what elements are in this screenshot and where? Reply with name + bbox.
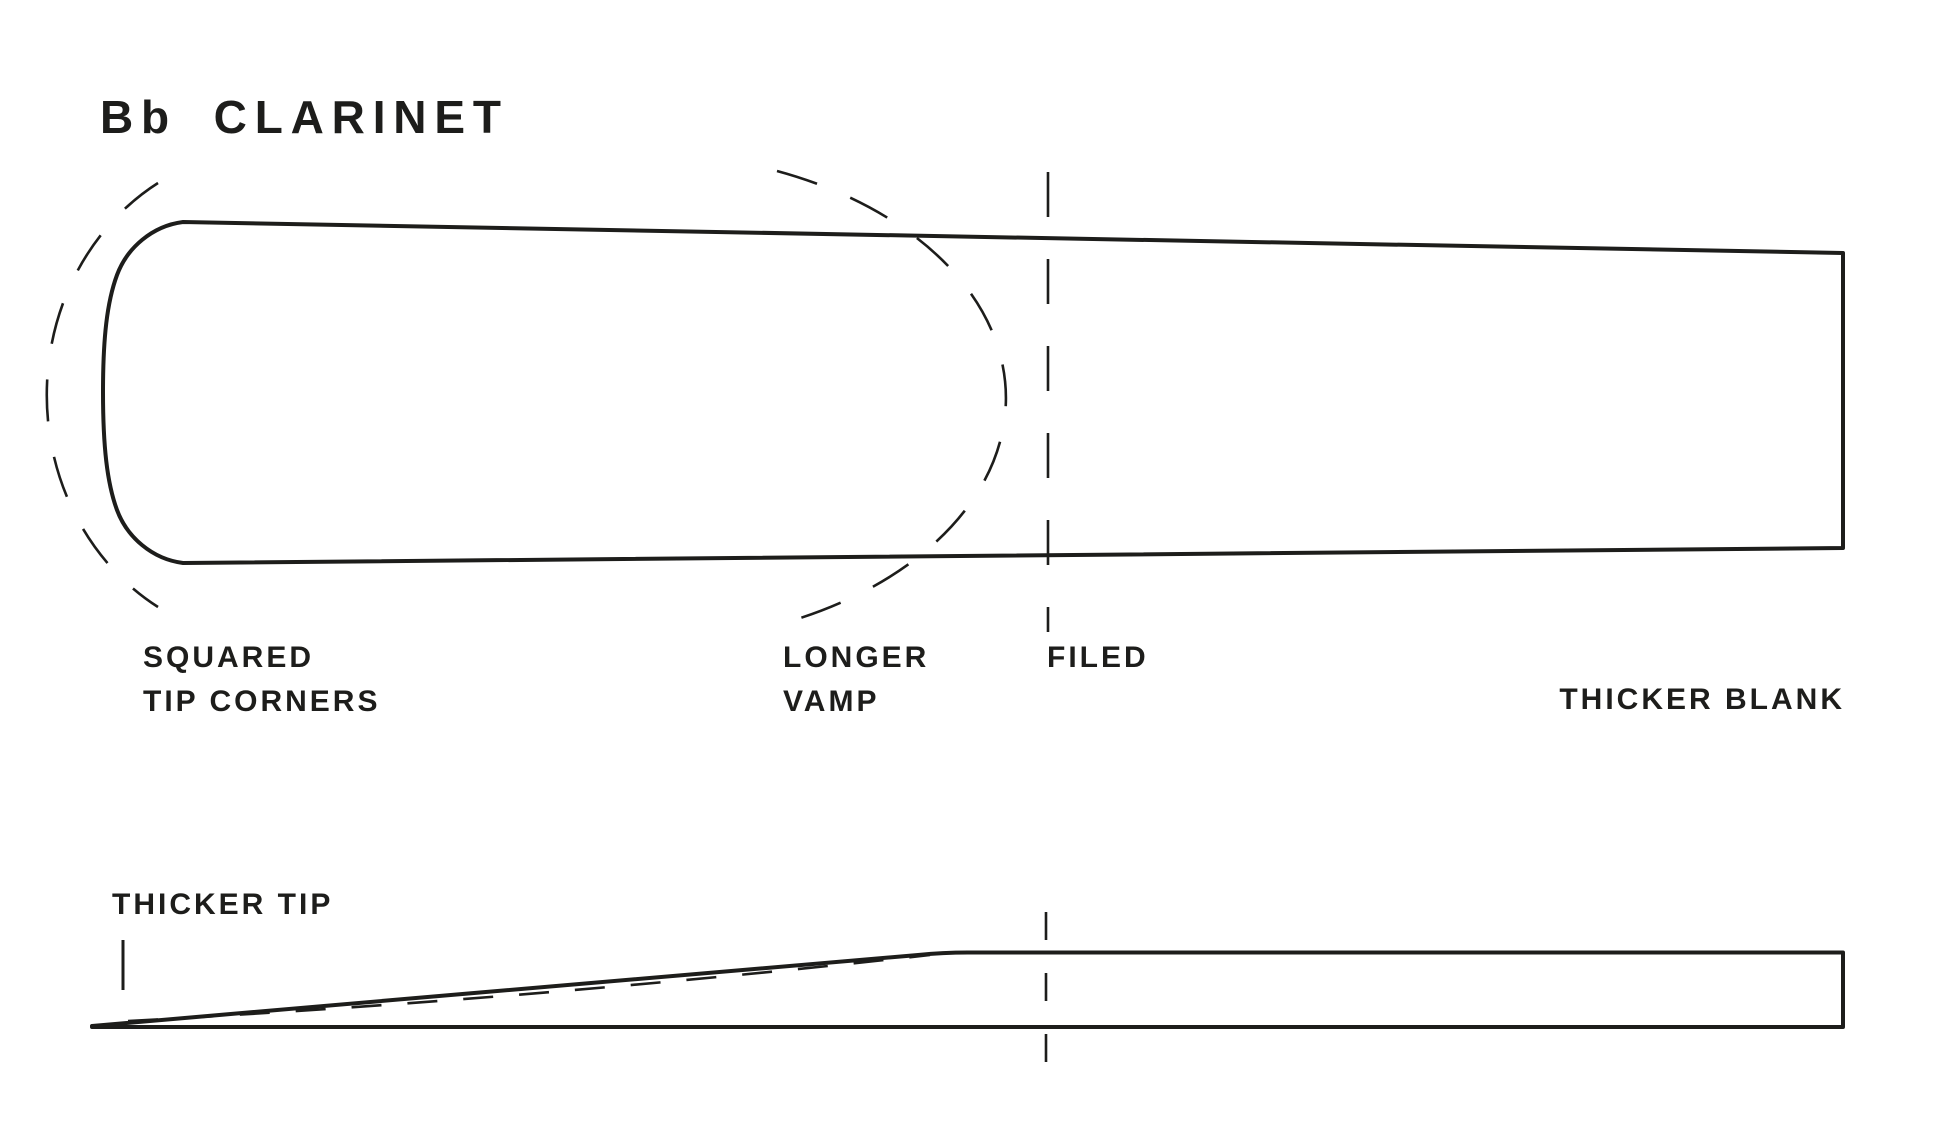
label-thicker-blank: THICKER BLANK <box>1559 678 1845 722</box>
front-view-outline <box>103 222 1843 563</box>
label-squared-tip-corners: SQUARED TIP CORNERS <box>143 636 380 723</box>
label-thicker-tip: THICKER TIP <box>112 883 333 927</box>
label-longer-vamp: LONGER VAMP <box>783 636 929 723</box>
label-filed: FILED <box>1047 636 1149 680</box>
side-view-outline <box>92 953 1843 1028</box>
reed-diagram-page: Bb CLARINET SQUARED TIP CORNERS LONGER V… <box>0 0 1946 1124</box>
reed-diagram <box>0 0 1946 1124</box>
